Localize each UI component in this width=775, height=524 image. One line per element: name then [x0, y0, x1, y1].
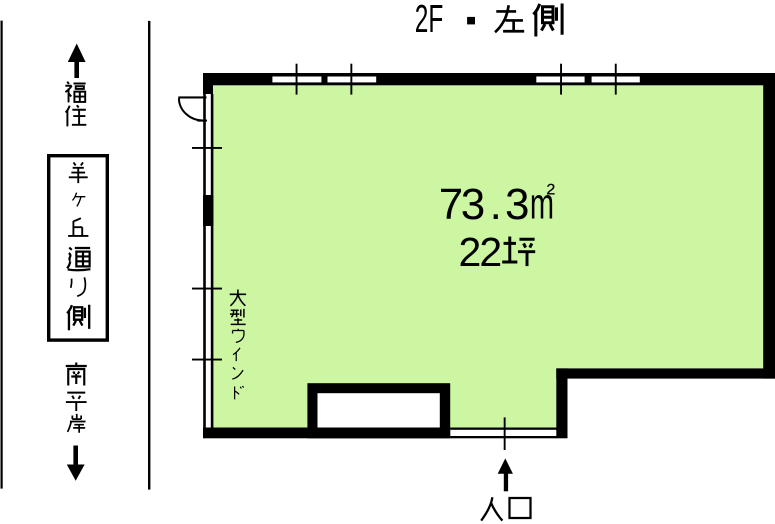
svg-text:2: 2: [479, 229, 502, 275]
svg-text:2F: 2F: [415, 0, 444, 40]
svg-text:.: .: [490, 180, 502, 229]
svg-text:7: 7: [439, 180, 463, 229]
svg-text:²: ²: [546, 178, 555, 208]
svg-text:3: 3: [461, 180, 485, 229]
svg-text:3: 3: [505, 180, 529, 229]
svg-text:2: 2: [458, 229, 481, 275]
